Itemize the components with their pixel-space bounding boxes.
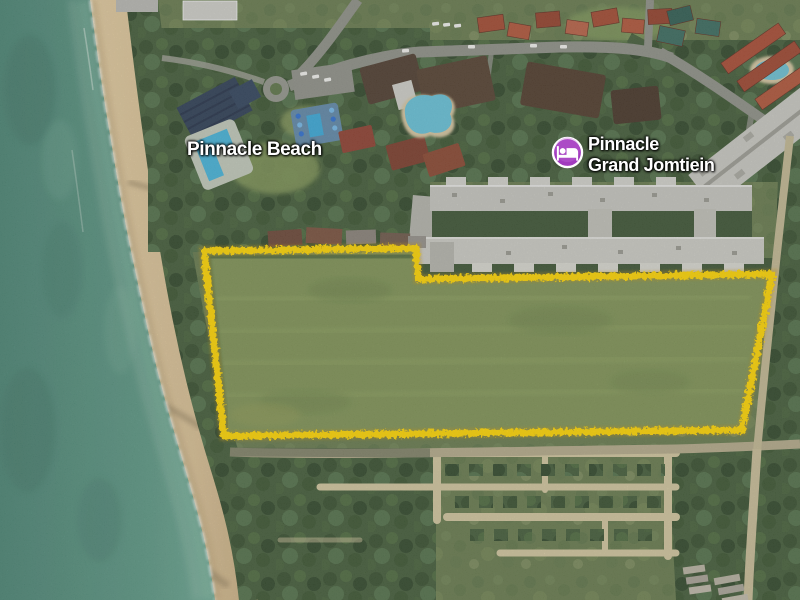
satellite-imagery [0,0,800,600]
lodging-marker-icon[interactable] [551,136,584,169]
grain-light [0,0,800,600]
poi-label-pinnacle-beach[interactable]: Pinnacle Beach [187,139,322,161]
satellite-map[interactable]: Pinnacle Beach Pinnacle Grand Jomtiein [0,0,800,600]
poi-label-text: Pinnacle Beach [187,139,322,160]
poi-label-line2: Grand Jomtiein [588,155,714,176]
poi-label-line1: Pinnacle [588,134,714,155]
poi-label-pinnacle-grand-jomtiein[interactable]: Pinnacle Grand Jomtiein [588,134,714,176]
